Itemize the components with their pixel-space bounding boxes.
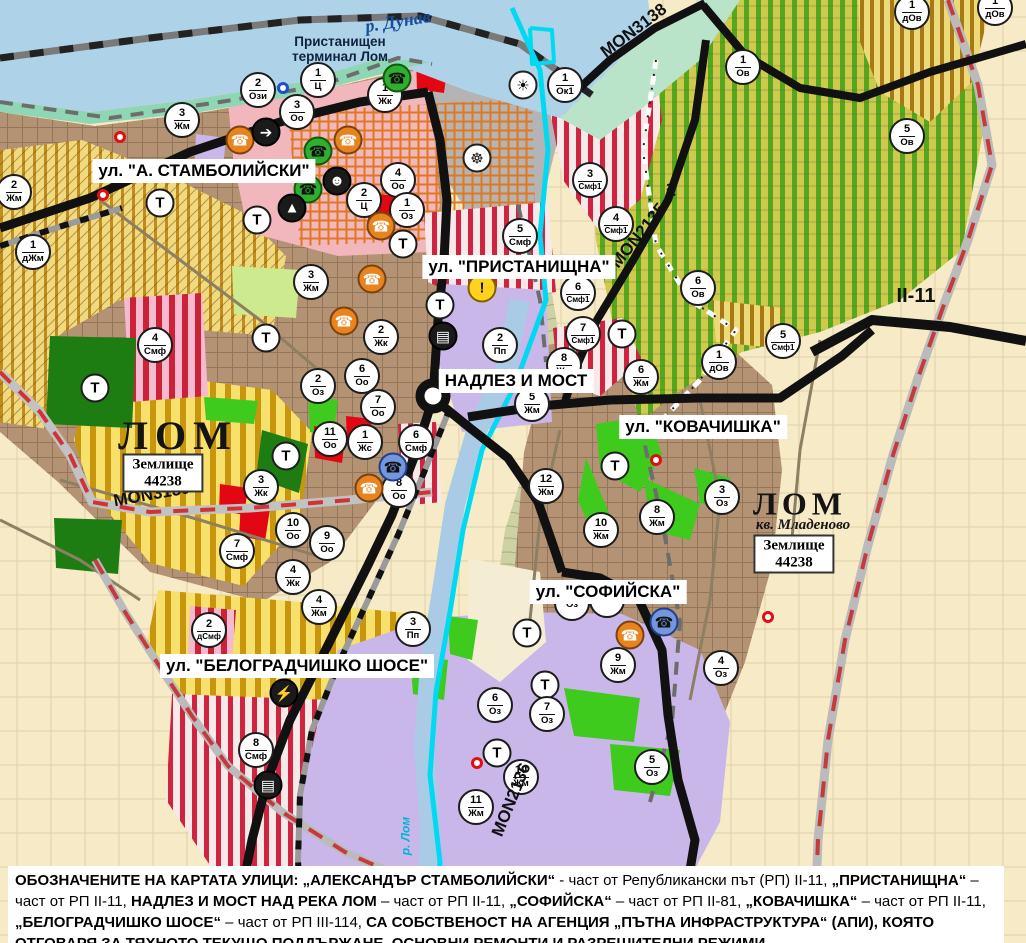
zone-code: Оз <box>539 714 555 726</box>
zone-number: 4 <box>718 656 724 668</box>
zone-marker-1-дОв: 1дОв <box>701 344 737 380</box>
zone-code: Смф1 <box>578 181 601 191</box>
zone-code: Жк <box>373 337 389 349</box>
zone-code: Пп <box>405 629 421 641</box>
transformer-marker-t: Т <box>272 442 301 471</box>
zone-code: Пп <box>492 345 508 357</box>
zone-code: Оо <box>319 543 335 555</box>
zone-marker-7-Оо: 7Оо <box>360 389 396 425</box>
zone-code: дОв <box>902 12 921 24</box>
zone-marker-12-Жм: 12Жм <box>528 468 564 504</box>
zone-marker-6-Смф1: 6Смф1 <box>560 275 596 311</box>
zone-number: 6 <box>638 365 644 377</box>
phone-icon: ☎ <box>616 621 645 650</box>
zone-marker-5-Оз: 5Оз <box>634 749 670 785</box>
zone-number: 8 <box>561 353 567 365</box>
zone-code: Жк <box>253 487 269 499</box>
zone-number: 8 <box>253 738 259 750</box>
zone-code: Жм <box>311 607 327 619</box>
phone-icon: ☎ <box>650 608 679 637</box>
zone-number: 2 <box>206 619 212 631</box>
zone-number: 3 <box>308 270 314 282</box>
zone-number: 7 <box>234 539 240 551</box>
legend-text-segment: „СОФИЙСКА“ <box>509 893 611 910</box>
zone-marker-2-Ози: 2Ози <box>240 72 276 108</box>
zone-marker-7-Смф: 7Смф <box>219 533 255 569</box>
map-label-roadnum: II-11 <box>897 285 936 307</box>
phone-icon: ☎ <box>379 453 408 482</box>
zoning-map-canvas: ОБОЗНАЧЕНИТЕ НА КАРТАТА УЛИЦИ: „АЛЕКСАНД… <box>0 0 1026 943</box>
phone-icon: ☎ <box>355 474 384 503</box>
zone-number: 1 <box>740 55 746 67</box>
mount-icon: ▲ <box>278 194 307 223</box>
legend-text-segment: - част от Републикански път (РП) II-11, <box>555 872 831 889</box>
zone-number: 3 <box>258 475 264 487</box>
map-label-zemlishte: Землище 44238 <box>122 454 203 493</box>
zone-code: Жм <box>524 404 540 416</box>
legend-text-segment: „АЛЕКСАНДЪР СТАМБОЛИЙСКИ“ <box>303 872 555 889</box>
zone-number: 7 <box>580 323 586 335</box>
zone-number: 11 <box>324 427 336 439</box>
phone-icon: ☎ <box>330 307 359 336</box>
zone-marker-2-Оз: 2Оз <box>300 368 336 404</box>
zone-code: Оз <box>487 705 503 717</box>
zone-number: 1 <box>315 68 321 80</box>
zone-marker-3-Жк: 3Жк <box>243 469 279 505</box>
zone-code: Оз <box>714 497 730 509</box>
zone-number: 5 <box>780 330 786 342</box>
zone-number: 5 <box>529 392 535 404</box>
legend-ownership-note: ОБОЗНАЧЕНИТЕ НА КАРТАТА УЛИЦИ: „АЛЕКСАНД… <box>8 866 1004 943</box>
zone-code: Смф <box>509 236 531 248</box>
zone-marker-3-Смф1: 3Смф1 <box>572 162 608 198</box>
zone-number: 2 <box>315 374 321 386</box>
zone-code: Смф <box>245 750 267 762</box>
zone-number: 4 <box>395 168 401 180</box>
zone-marker-3-Жм: 3Жм <box>293 264 329 300</box>
zone-number: 1 <box>909 0 915 12</box>
phone-icon: ☎ <box>358 265 387 294</box>
zone-code: Оз <box>310 386 326 398</box>
zone-number: 1 <box>30 240 36 252</box>
zone-number: 1 <box>992 0 998 8</box>
zone-code: Жм <box>633 377 649 389</box>
zone-number: 1 <box>716 350 722 362</box>
zone-code: Смф1 <box>604 225 627 235</box>
zone-number: 7 <box>375 395 381 407</box>
zone-marker-10-Жм: 10Жм <box>583 512 619 548</box>
zone-code: дЖм <box>22 252 44 264</box>
street-label: ул. "БЕЛОГРАДЧИШКО ШОСЕ" <box>160 654 434 678</box>
zone-marker-5-Смф1: 5Смф1 <box>765 323 801 359</box>
poi-dot-blue <box>277 82 289 94</box>
zone-code: Жм <box>610 665 626 677</box>
wheel-icon: ☸ <box>463 144 492 173</box>
zone-code: Смф <box>226 551 248 563</box>
transformer-marker-t: Т <box>608 320 637 349</box>
zone-code: Ози <box>249 90 267 102</box>
map-label-zemlishte: Землище 44238 <box>753 535 834 574</box>
zone-number: 8 <box>654 505 660 517</box>
zone-code: Жм <box>6 192 22 204</box>
zone-marker-1-дЖм: 1дЖм <box>15 234 51 270</box>
phone-icon: ☎ <box>226 126 255 155</box>
transformer-marker-t: Т <box>483 739 512 768</box>
zone-number: 3 <box>294 100 300 112</box>
legend-text-segment: – част от РП III-114, <box>221 914 366 931</box>
street-label: НАДЛЕЗ И МОСТ <box>439 369 594 393</box>
zone-code: Жм <box>538 486 554 498</box>
transformer-marker-t: Т <box>513 619 542 648</box>
street-label: ул. "ПРИСТАНИЩНА" <box>422 255 615 279</box>
zone-marker-9-Оо: 9Оо <box>309 525 345 561</box>
zone-code: Смф <box>405 442 427 454</box>
zone-number: 1 <box>404 198 410 210</box>
zone-code: Ов <box>735 67 751 79</box>
zone-code: дОв <box>985 8 1004 20</box>
zone-code: Смф1 <box>571 335 594 345</box>
zone-code: Жс <box>357 442 373 454</box>
zone-number: 5 <box>517 224 523 236</box>
poi-dot-red <box>114 131 126 143</box>
zone-code: Смф1 <box>771 342 794 352</box>
zone-code: Оз <box>644 767 660 779</box>
truck-icon: ▤ <box>429 322 458 351</box>
zone-code: Жм <box>174 120 190 132</box>
legend-text-segment: – част от РП II-11, <box>857 893 985 910</box>
zone-marker-4-Смф: 4Смф <box>137 327 173 363</box>
zone-code: Оз <box>713 668 729 680</box>
zone-number: 6 <box>413 430 419 442</box>
legend-text-segment: НАДЛЕЗ И МОСТ НАД РЕКА ЛОМ <box>131 893 377 910</box>
map-label-poi: Пристанищен терминал Лом <box>292 35 388 65</box>
zone-code: Смф1 <box>566 294 589 304</box>
region-palegreen-park <box>232 266 300 318</box>
zone-number: 6 <box>492 693 498 705</box>
zone-number: 9 <box>615 653 621 665</box>
zone-number: 2 <box>378 325 384 337</box>
phone-icon: ☎ <box>367 212 396 241</box>
map-label-river-sm: р. Лом <box>399 817 412 855</box>
truck-icon: ▤ <box>254 771 283 800</box>
zone-number: 9 <box>324 531 330 543</box>
zone-number: 4 <box>152 333 158 345</box>
zone-code: Ц <box>310 80 326 92</box>
zone-marker-6-Смф: 6Смф <box>398 424 434 460</box>
zone-marker-4-Оз: 4Оз <box>703 650 739 686</box>
key-icon: ➔ <box>252 118 281 147</box>
zone-code: Жм <box>593 530 609 542</box>
zone-number: 2 <box>361 188 367 200</box>
zone-marker-11-Оо: 11Оо <box>312 421 348 457</box>
transformer-marker-t: Т <box>252 324 281 353</box>
zone-marker-3-Оз: 3Оз <box>704 479 740 515</box>
zone-marker-6-Ов: 6Ов <box>680 270 716 306</box>
transformer-marker-t: Т <box>81 374 110 403</box>
zone-number: 10 <box>595 518 607 530</box>
zone-code: Оо <box>289 112 305 124</box>
zone-number: 6 <box>359 364 365 376</box>
zone-number: 3 <box>587 169 593 181</box>
zone-marker-3-Жм: 3Жм <box>164 102 200 138</box>
legend-text-segment: – част от РП II-11, <box>377 893 510 910</box>
zone-code: Ов <box>899 136 915 148</box>
phone-icon: ☎ <box>383 64 412 93</box>
zone-code: Ок1 <box>556 85 573 97</box>
transformer-marker-t: Т <box>146 189 175 218</box>
zone-code: Жк <box>285 577 301 589</box>
zone-code: Жм <box>303 282 319 294</box>
legend-text-segment: „БЕЛОГРАДЧИШКО ШОСЕ“ <box>15 914 221 931</box>
zone-marker-10-Оо: 10Оо <box>275 512 311 548</box>
zone-code: Жм <box>468 807 484 819</box>
zone-marker-1-Ок1: 1Ок1 <box>547 67 583 103</box>
zone-code: Оо <box>322 439 338 451</box>
zone-number: 2 <box>497 333 503 345</box>
zone-code: Жк <box>377 95 393 107</box>
zone-code: Жм <box>649 517 665 529</box>
transformer-marker-t: Т <box>601 452 630 481</box>
poi-dot-red <box>762 611 774 623</box>
zone-number: 5 <box>649 755 655 767</box>
zone-marker-4-Жк: 4Жк <box>275 559 311 595</box>
zone-code: Оз <box>399 210 415 222</box>
zone-code: Ов <box>690 288 706 300</box>
legend-text-segment: „КОВАЧИШКА“ <box>745 893 857 910</box>
zone-code: Оо <box>391 490 407 502</box>
zone-number: 5 <box>904 124 910 136</box>
zone-marker-2-Жк: 2Жк <box>363 319 399 355</box>
zone-marker-8-Смф: 8Смф <box>238 732 274 768</box>
zone-marker-5-Смф: 5Смф <box>502 218 538 254</box>
legend-text-segment: – част от РП II-81, <box>612 893 746 910</box>
map-label-city-big: ЛОМ <box>118 414 238 458</box>
legend-text-segment: ОБОЗНАЧЕНИТЕ НА КАРТАТА УЛИЦИ: <box>15 872 303 889</box>
zone-marker-2-Пп: 2Пп <box>482 327 518 363</box>
zone-number: 4 <box>316 595 322 607</box>
zone-code: дОв <box>709 362 728 374</box>
zone-number: 3 <box>410 617 416 629</box>
poi-dot-red <box>650 454 662 466</box>
zone-marker-2-дСмф: 2дСмф <box>191 612 227 648</box>
zone-number: 4 <box>613 213 619 225</box>
zone-number: 11 <box>470 795 482 807</box>
phone-icon: ☎ <box>334 126 363 155</box>
zone-marker-3-Пп: 3Пп <box>395 611 431 647</box>
zone-marker-11-Жм: 11Жм <box>458 789 494 825</box>
sun-icon: ☀ <box>509 71 538 100</box>
people-icon: ☻ <box>323 167 352 196</box>
zone-number: 12 <box>540 474 552 486</box>
zone-number: 3 <box>719 485 725 497</box>
zone-number: 10 <box>287 518 299 530</box>
zone-marker-6-Оз: 6Оз <box>477 687 513 723</box>
zone-number: 3 <box>179 108 185 120</box>
bolt-icon: ⚡ <box>270 679 299 708</box>
zone-number: 6 <box>695 276 701 288</box>
street-label: ул. "СОФИЙСКА" <box>530 580 687 604</box>
zone-code: дСмф <box>197 631 221 641</box>
zone-marker-8-Жм: 8Жм <box>639 499 675 535</box>
zone-code: Смф <box>144 345 166 357</box>
poi-dot-red <box>97 189 109 201</box>
legend-text-segment: „ПРИСТАНИЩНА“ <box>832 872 967 889</box>
zone-marker-1-Ов: 1Ов <box>725 49 761 85</box>
zone-marker-7-Оз: 7Оз <box>529 696 565 732</box>
poi-dot-red <box>471 757 483 769</box>
transformer-marker-t: Т <box>243 206 272 235</box>
zone-code: Ц <box>356 200 372 212</box>
street-label: ул. "А. СТАМБОЛИЙСКИ" <box>92 159 315 183</box>
map-label-kvartal: кв. Младеново <box>756 517 850 534</box>
zone-code: Оо <box>285 530 301 542</box>
zone-marker-1-Жс: 1Жс <box>347 424 383 460</box>
zone-code: Оо <box>370 407 386 419</box>
zone-marker-6-Жм: 6Жм <box>623 359 659 395</box>
zone-code: Оо <box>354 376 370 388</box>
zone-marker-5-Ов: 5Ов <box>889 118 925 154</box>
zone-marker-9-Жм: 9Жм <box>600 647 636 683</box>
zone-marker-3-Оо: 3Оо <box>279 94 315 130</box>
zone-number: 1 <box>562 73 568 85</box>
zone-marker-4-Жм: 4Жм <box>301 589 337 625</box>
zone-number: 4 <box>290 565 296 577</box>
zone-marker-7-Смф1: 7Смф1 <box>565 316 601 352</box>
zone-number: 2 <box>11 180 17 192</box>
transformer-marker-t: Т <box>426 291 455 320</box>
zone-number: 2 <box>255 78 261 90</box>
zone-number: 7 <box>544 702 550 714</box>
zone-code: Оо <box>390 180 406 192</box>
street-label: ул. "КОВАЧИШКА" <box>619 415 787 439</box>
zone-number: 1 <box>362 430 368 442</box>
zone-marker-1-Ц: 1Ц <box>300 62 336 98</box>
zone-number: 6 <box>575 282 581 294</box>
